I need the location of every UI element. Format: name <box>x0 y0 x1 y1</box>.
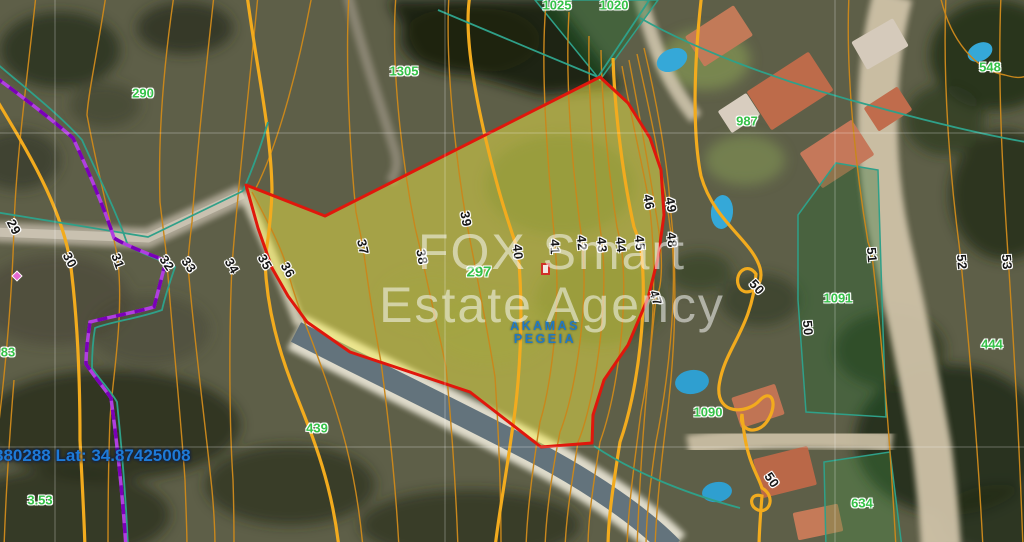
area-name-line2: PEGEIA <box>510 333 580 346</box>
parcel-1091 <box>798 163 886 417</box>
point-marker-icon <box>542 264 549 274</box>
area-name-label: AKAMAS PEGEIA <box>510 320 580 346</box>
map-canvas[interactable]: 2930313233343536373839404142434445464948… <box>0 0 1024 542</box>
coordinate-readout: 380288 Lat: 34.87425008 <box>0 446 191 466</box>
